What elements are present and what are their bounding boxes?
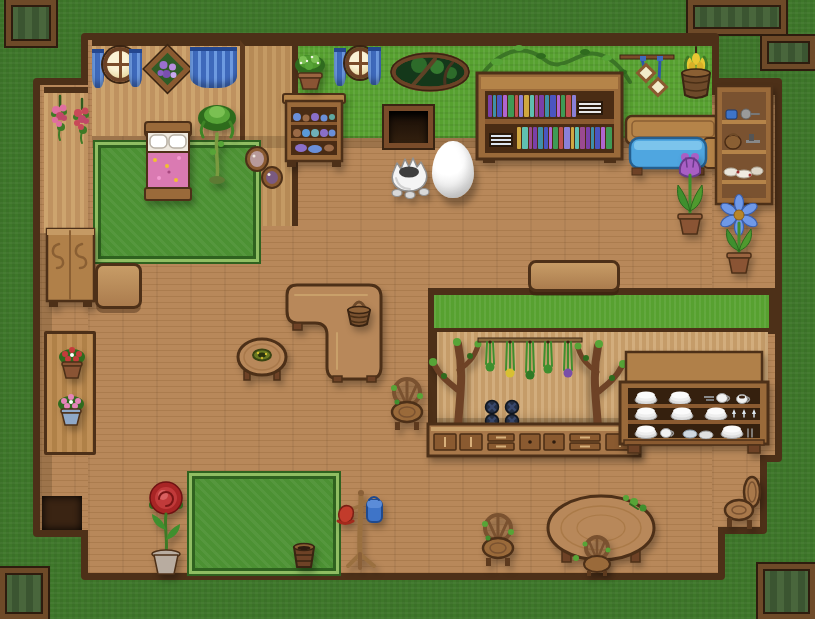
hanging-frames-graphic — [620, 45, 674, 97]
side-table[interactable] — [95, 263, 142, 309]
cupboard-plant — [287, 50, 333, 90]
cupboard-plant-graphic — [287, 50, 333, 90]
coat-rack[interactable] — [334, 486, 386, 570]
kitchen-divider-wall — [428, 288, 775, 334]
window-top-right[interactable] — [762, 36, 815, 69]
dish-hutch[interactable] — [620, 352, 768, 456]
small-chair-graphic — [577, 534, 617, 576]
potted-palm[interactable] — [196, 100, 238, 186]
flower-picture-graphic — [146, 46, 189, 92]
bedroom-curtain-wide — [190, 47, 237, 88]
hall-curtain-right — [368, 47, 381, 85]
bedroom-curtain-right — [129, 49, 142, 87]
dish-cupboard-graphic — [283, 86, 345, 168]
game-scene — [0, 0, 815, 619]
bed[interactable] — [143, 122, 193, 202]
corner-chair[interactable] — [721, 474, 763, 532]
wardrobe[interactable] — [46, 228, 95, 309]
potted-palm-graphic — [196, 100, 238, 186]
blue-flower-pot[interactable] — [714, 193, 764, 283]
egg[interactable] — [432, 141, 474, 198]
coat-rack-graphic — [334, 486, 386, 570]
bed-graphic — [143, 122, 193, 202]
exit-pad-bottom-right[interactable] — [758, 564, 815, 619]
small-chair[interactable] — [577, 534, 617, 576]
branch-left-graphic — [428, 330, 484, 428]
bookshelf[interactable] — [477, 71, 622, 163]
hanging-flowers-2-graphic — [70, 97, 94, 143]
egg-creature-graphic — [386, 146, 434, 198]
basket[interactable] — [344, 288, 374, 328]
herb-rack[interactable] — [478, 334, 582, 378]
rose-pot[interactable] — [140, 476, 192, 578]
tulip-basket-graphic — [676, 47, 716, 105]
purple-tulip-pot[interactable] — [666, 145, 714, 237]
purple-tulip-pot-graphic — [666, 145, 714, 237]
tool-shelf[interactable] — [716, 86, 772, 208]
tulip-basket — [676, 47, 716, 105]
pink-flower-pot[interactable] — [54, 389, 90, 428]
bucket[interactable] — [290, 541, 318, 571]
bedroom-curtain-left — [92, 49, 104, 88]
exit-pad-top-right[interactable] — [688, 0, 786, 34]
bucket-graphic — [290, 541, 318, 571]
round-table-nest[interactable] — [236, 333, 288, 383]
forest-oval-window — [391, 53, 469, 92]
entry-mat — [42, 496, 82, 530]
corner-chair-graphic — [721, 474, 763, 532]
branch-left — [428, 330, 484, 428]
bookshelf-graphic — [477, 71, 622, 163]
flower-picture — [146, 46, 189, 92]
hanging-flowers-2 — [70, 97, 94, 143]
wardrobe-graphic — [46, 228, 95, 309]
dish-cupboard[interactable] — [283, 86, 345, 168]
divider-bench[interactable] — [528, 260, 620, 292]
forest-oval-window-graphic — [391, 53, 469, 92]
round-table-nest-graphic — [236, 333, 288, 383]
pink-flower-pot-graphic — [54, 389, 90, 428]
rustic-chair-1[interactable] — [385, 376, 429, 432]
rustic-chair-2[interactable] — [476, 512, 528, 574]
rose-pot-graphic — [140, 476, 192, 578]
basket-graphic — [344, 288, 374, 328]
hanging-flowers-1 — [48, 94, 72, 142]
red-flower-pot[interactable] — [55, 342, 89, 380]
kitchen-counter-graphic — [428, 424, 640, 456]
dish-hutch-graphic — [620, 352, 768, 456]
portrait-small — [261, 166, 283, 189]
tool-shelf-graphic — [716, 86, 772, 208]
egg-creature[interactable] — [386, 146, 434, 198]
hanging-frames — [620, 45, 674, 97]
red-flower-pot-graphic — [55, 342, 89, 380]
kitchen-counter[interactable] — [428, 424, 640, 456]
herb-rack-graphic — [478, 334, 582, 378]
rustic-chair-1-graphic — [385, 376, 429, 432]
exit-pad-bottom-left[interactable] — [0, 568, 48, 619]
hanging-flowers-1-graphic — [48, 94, 72, 142]
rustic-chair-2-graphic — [476, 512, 528, 574]
exit-pad-top-left[interactable] — [6, 0, 56, 46]
portrait-small-graphic — [261, 166, 283, 189]
blue-flower-pot-graphic — [714, 193, 764, 283]
hall-curtain-left — [334, 48, 346, 86]
wall-opening[interactable] — [384, 106, 433, 148]
